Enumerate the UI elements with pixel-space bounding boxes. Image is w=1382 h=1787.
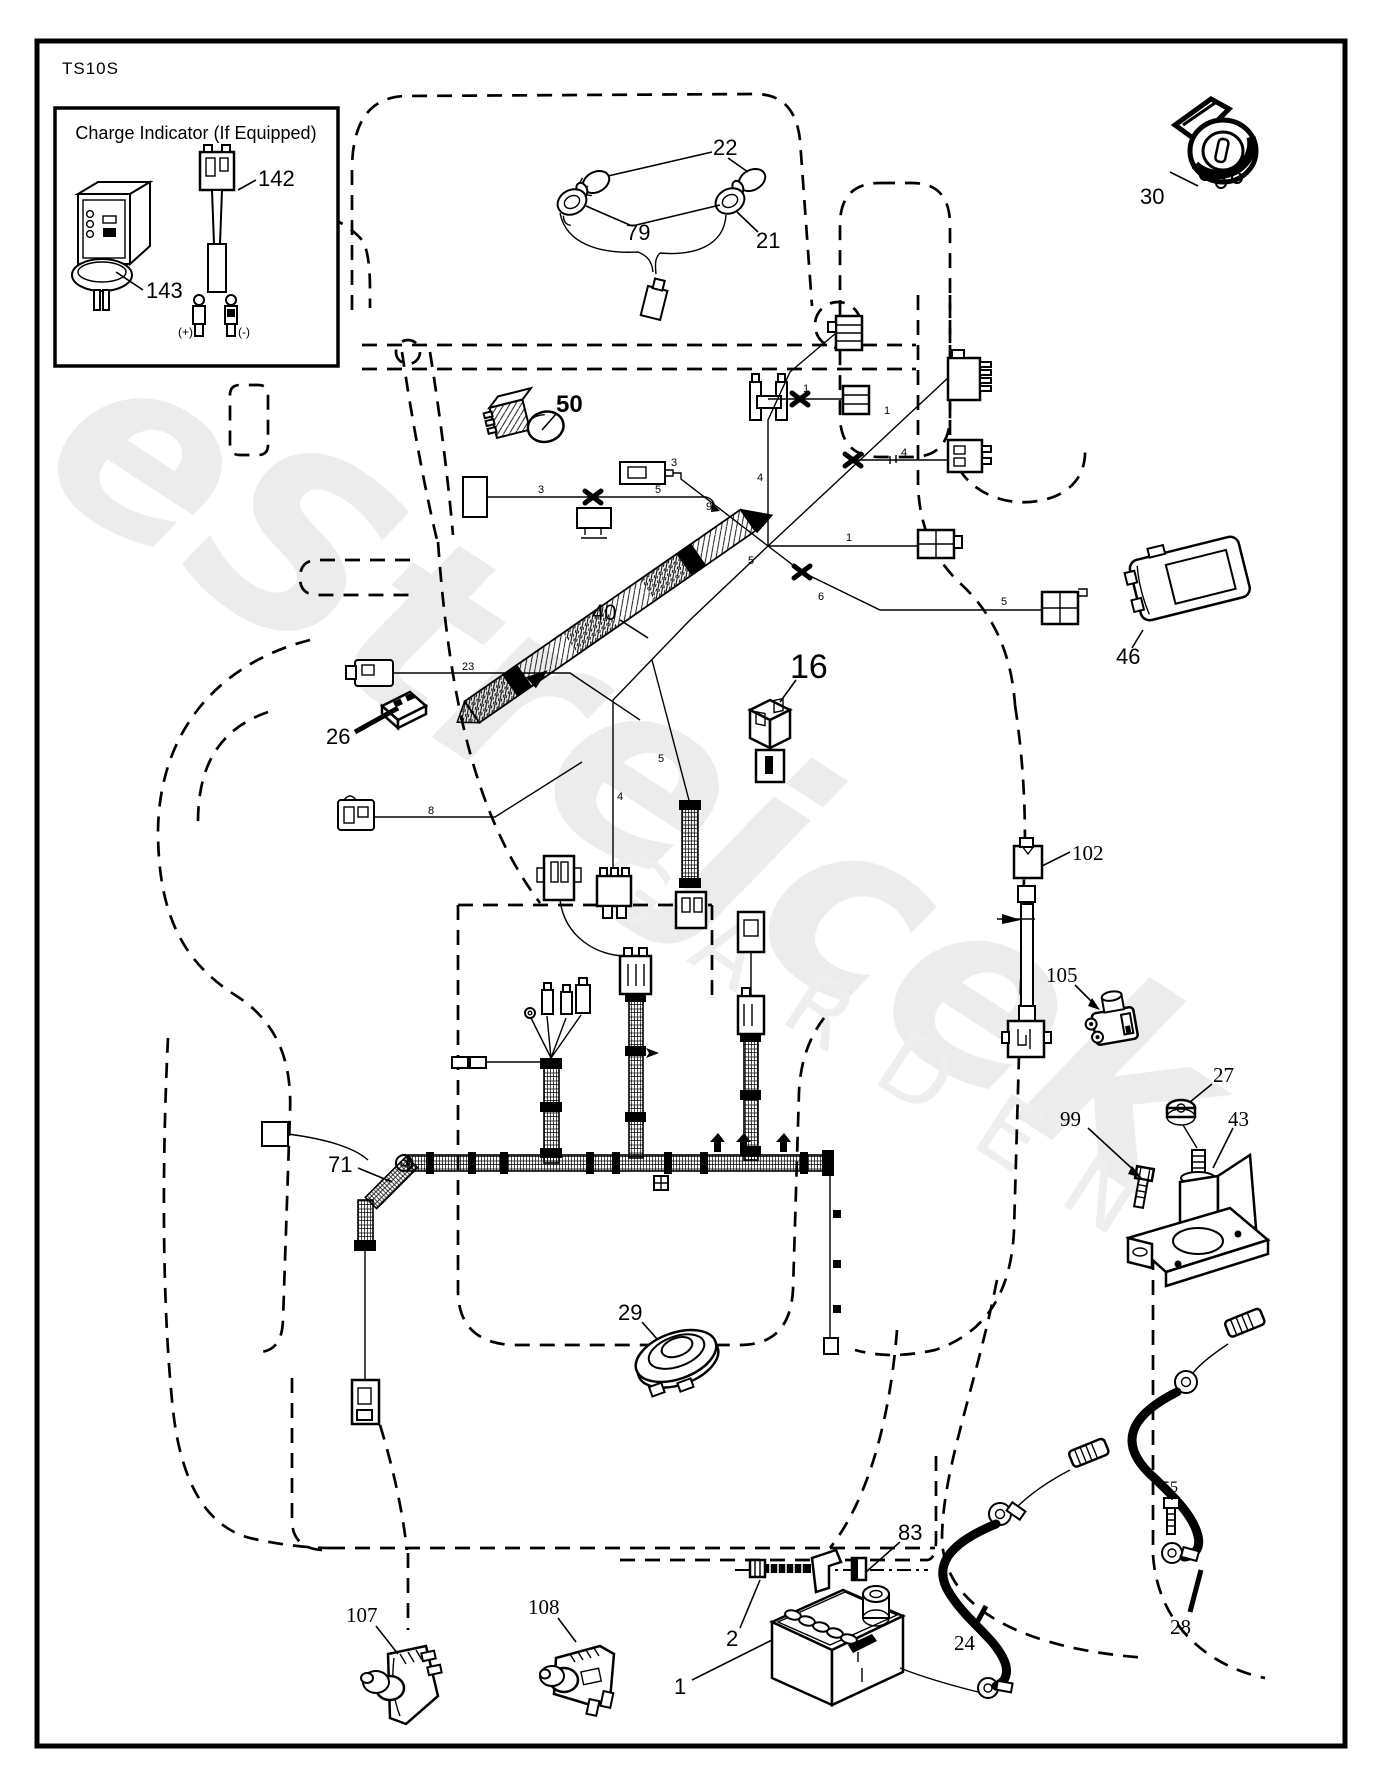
battery-group bbox=[735, 1550, 928, 1705]
connector-c5 bbox=[620, 462, 673, 484]
part-label-83: 83 bbox=[898, 1520, 922, 1545]
wire-label: 1 bbox=[803, 383, 809, 395]
part-label-107: 107 bbox=[346, 1603, 378, 1627]
junction-x3 bbox=[794, 566, 810, 578]
parts-diagram-page: eStrejcek GARDEN TS10S bbox=[0, 0, 1382, 1787]
left-fender-outline bbox=[158, 640, 310, 1352]
part-label-21: 21 bbox=[756, 228, 780, 253]
dash-loop bbox=[396, 340, 420, 364]
connector-c16 bbox=[537, 856, 581, 900]
part-label-26: 26 bbox=[326, 724, 350, 749]
part-label-46: 46 bbox=[1116, 644, 1140, 669]
part-label-30: 30 bbox=[1140, 184, 1164, 209]
fusible-link-24 bbox=[1068, 1438, 1110, 1468]
horn-29 bbox=[629, 1320, 728, 1403]
battery bbox=[772, 1586, 903, 1705]
part-label-142: 142 bbox=[258, 166, 295, 191]
terminal-negative-label: (-) bbox=[238, 325, 250, 339]
wire-label: 1 bbox=[846, 532, 852, 544]
switch-108 bbox=[540, 1646, 614, 1716]
wire-label: 3 bbox=[671, 457, 677, 469]
part-label-108: 108 bbox=[528, 1595, 560, 1619]
connector-c8 bbox=[352, 1380, 379, 1424]
part-label-79: 79 bbox=[626, 220, 650, 245]
wire-label: 5 bbox=[748, 555, 754, 567]
connector-ignition-c1 bbox=[948, 350, 991, 400]
ignition-switch bbox=[1175, 99, 1256, 188]
headlight-harness bbox=[553, 152, 769, 320]
part-label-16: 16 bbox=[790, 648, 828, 686]
connector-c7 bbox=[1042, 589, 1087, 624]
connector-c2 bbox=[948, 440, 991, 472]
part-label-24: 24 bbox=[954, 1631, 976, 1655]
harness-71 bbox=[262, 856, 841, 1424]
part-label-28: 28 bbox=[1170, 1615, 1191, 1639]
wire-label: 5 bbox=[655, 484, 661, 496]
connector-c17 bbox=[738, 912, 764, 952]
bottom-right-outer bbox=[1153, 1230, 1265, 1678]
wire-label: 9 bbox=[706, 501, 712, 513]
part-label-22: 22 bbox=[713, 135, 737, 160]
bottom-horizontal-2 bbox=[620, 1455, 936, 1560]
ground-cable-24 bbox=[900, 1438, 1110, 1698]
component-box bbox=[463, 477, 487, 517]
switch-107 bbox=[361, 1646, 442, 1724]
wire-label: 1 bbox=[884, 405, 890, 417]
bottom-left-outer bbox=[164, 1038, 330, 1548]
part-label-29: 29 bbox=[618, 1300, 642, 1325]
headlight-plug bbox=[641, 277, 670, 320]
hour-meter bbox=[1120, 527, 1251, 623]
wire-label: 8 bbox=[428, 805, 434, 817]
connector-c4 bbox=[750, 374, 787, 420]
wire-label: 23 bbox=[462, 661, 474, 673]
wire-label: 4 bbox=[617, 791, 623, 803]
terminal-positive-label: (+) bbox=[178, 325, 193, 339]
connector-stack-lower bbox=[843, 386, 869, 414]
connector-c3 bbox=[918, 530, 962, 558]
charge-indicator-inset: Charge Indicator (If Equipped) bbox=[55, 108, 338, 366]
bottom-left-diag bbox=[380, 1425, 407, 1550]
part-label-99: 99 bbox=[1060, 1107, 1081, 1131]
part-label-40: 40 bbox=[592, 600, 616, 625]
bolt-55 bbox=[1164, 1498, 1179, 1534]
wire-label: 3 bbox=[538, 484, 544, 496]
part-label-143: 143 bbox=[146, 278, 183, 303]
connector-16 bbox=[750, 699, 790, 782]
battery-area-curve bbox=[830, 1330, 897, 1548]
switch-50 bbox=[480, 383, 566, 455]
wire-label: 4 bbox=[901, 447, 907, 459]
battery-terminal-83 bbox=[852, 1558, 866, 1580]
part-label-1: 1 bbox=[674, 1674, 686, 1699]
fusible-link-28 bbox=[1224, 1308, 1266, 1338]
model-code: TS10S bbox=[62, 59, 119, 78]
wiring-diagram: eStrejcek GARDEN TS10S bbox=[0, 0, 1382, 1787]
relay-box bbox=[577, 508, 611, 528]
bottom-left-inner bbox=[292, 1378, 322, 1550]
part-label-43: 43 bbox=[1228, 1107, 1249, 1131]
wire-label: 4 bbox=[757, 472, 763, 484]
inset-title: Charge Indicator (If Equipped) bbox=[75, 123, 316, 143]
battery-bolt-2 bbox=[750, 1560, 811, 1577]
part-label-105: 105 bbox=[1046, 963, 1078, 987]
part-label-102: 102 bbox=[1072, 841, 1104, 865]
bottom-right-inner bbox=[942, 1280, 1148, 1658]
part-label-71: 71 bbox=[328, 1152, 352, 1177]
wire-label: 5 bbox=[658, 753, 664, 765]
part-label-50: 50 bbox=[556, 391, 583, 418]
part-label-27: 27 bbox=[1213, 1063, 1234, 1087]
connector-c6 bbox=[338, 796, 374, 830]
wire-label: 6 bbox=[818, 591, 824, 603]
part-label-55: 55 bbox=[1162, 1479, 1178, 1496]
left-fender-inner bbox=[198, 712, 268, 822]
wire-label: 5 bbox=[1001, 596, 1007, 608]
connector-c9 bbox=[620, 948, 651, 994]
connector-stack-top bbox=[828, 316, 862, 350]
part-label-2: 2 bbox=[726, 1626, 738, 1651]
